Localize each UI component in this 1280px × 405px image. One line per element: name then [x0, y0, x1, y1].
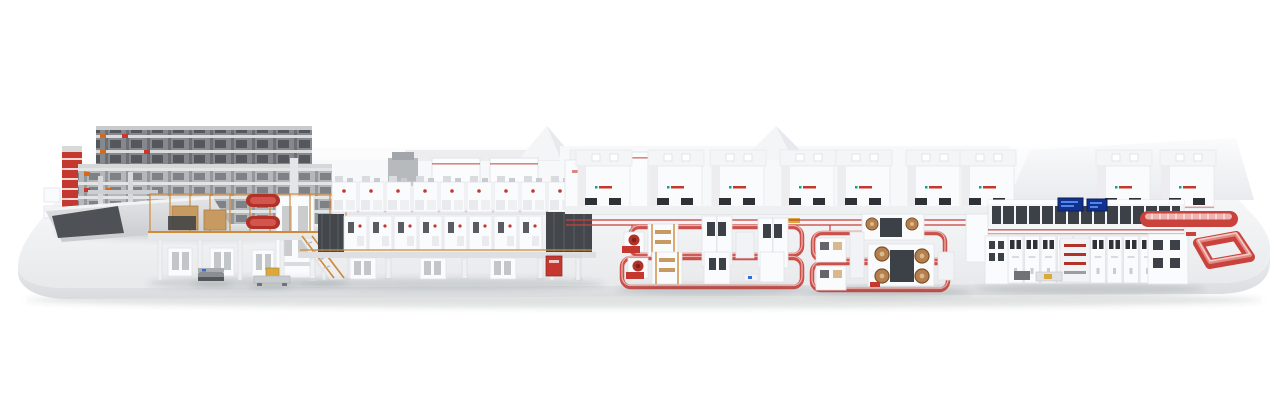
assembly-cabinet	[1124, 236, 1139, 283]
coating-mid-cabinet	[419, 216, 442, 250]
screen-glow-line	[1061, 205, 1074, 207]
right-agv	[1014, 271, 1062, 281]
assembly-cabinet	[1107, 236, 1122, 283]
mid-shelf-bay	[1060, 238, 1090, 282]
coating-mid-cabinet	[494, 216, 517, 250]
coating-mid-cabinet	[344, 216, 367, 250]
status-screen	[1087, 199, 1107, 211]
cell-b-upper-winder	[862, 214, 924, 240]
line-left-tower	[985, 236, 1009, 284]
screen-glow-line	[1061, 201, 1078, 203]
process-chamber	[906, 150, 962, 208]
dark-panel	[168, 216, 196, 230]
right-end-cabinet	[1148, 234, 1188, 284]
coating-mid-cabinet	[519, 216, 542, 250]
status-screen	[1058, 198, 1083, 211]
process-chamber	[648, 150, 704, 208]
support-column	[461, 258, 469, 281]
tan-cabinet	[204, 210, 226, 230]
scene-canvas	[0, 0, 1280, 405]
end-tower-right	[546, 212, 592, 252]
coating-mid-cabinet	[394, 216, 417, 250]
coating-mid-cabinet	[444, 216, 467, 250]
loop-connector	[1186, 232, 1196, 236]
status-screens	[1058, 198, 1107, 211]
agv-status-light	[202, 269, 206, 272]
screen-glow-line	[1090, 202, 1102, 204]
support-column	[385, 258, 393, 281]
process-chamber	[710, 150, 766, 208]
scene-svg	[0, 0, 1280, 405]
coating-mid-cabinet	[469, 216, 492, 250]
process-chamber	[576, 150, 632, 208]
process-chamber	[836, 150, 892, 208]
coating-mid-cabinet	[369, 216, 392, 250]
support-column	[537, 258, 545, 281]
support-column	[309, 258, 317, 281]
assembly-cabinet	[1091, 236, 1106, 283]
process-chamber	[960, 150, 1016, 208]
process-chamber	[780, 150, 836, 208]
straight-conveyor	[1140, 211, 1238, 227]
screen-glow-line	[1090, 206, 1098, 208]
process-chamber	[1160, 150, 1216, 208]
payload-box	[266, 268, 279, 276]
under-line-cabinets	[350, 258, 516, 279]
red-unit	[546, 256, 562, 276]
